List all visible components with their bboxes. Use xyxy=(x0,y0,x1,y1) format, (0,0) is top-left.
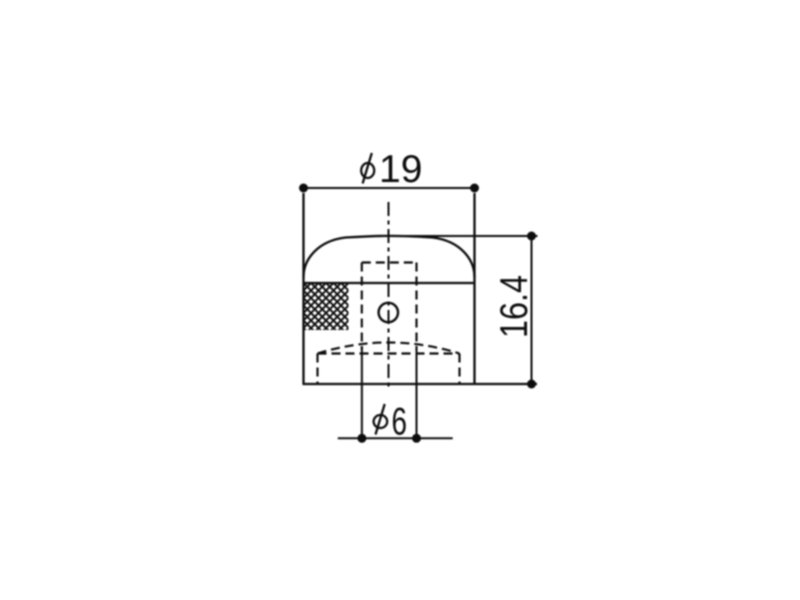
svg-text:6: 6 xyxy=(392,401,408,444)
svg-text:16.4: 16.4 xyxy=(493,275,536,338)
svg-text:19: 19 xyxy=(379,148,422,191)
